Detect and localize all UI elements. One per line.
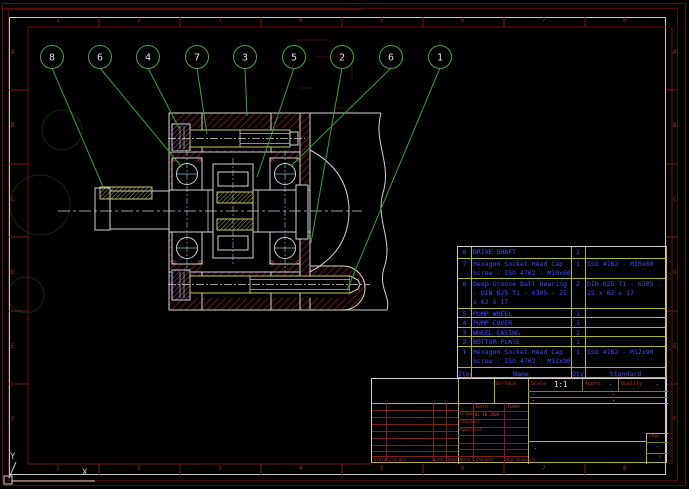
quality-value: - xyxy=(656,383,659,388)
drawn-label: Drawn xyxy=(460,413,474,418)
zone-left-c: C xyxy=(11,197,15,203)
scale-label: Scale xyxy=(531,382,546,387)
balloon-item-1[interactable]: 1 xyxy=(429,46,452,69)
surface-label: Surface xyxy=(495,382,516,387)
checked-label: Checked xyxy=(460,421,479,426)
page-small: P. xyxy=(659,456,664,460)
zone-bottom-3: 3 xyxy=(218,466,222,472)
zone-left-e: E xyxy=(11,344,15,350)
parts-list-row[interactable]: 2 BOTTOM PLATE 1 xyxy=(458,337,666,347)
parts-list-row[interactable]: 6 Deep Groove Ball Bearing - DIN 625 T1 … xyxy=(458,279,666,309)
zone-top-1: 1 xyxy=(56,18,60,24)
zone-bottom-8: 8 xyxy=(623,466,627,472)
balloon-item-4[interactable]: 4 xyxy=(137,46,160,69)
zone-bottom-2: 2 xyxy=(137,466,141,472)
signed-label: Approved xyxy=(460,429,482,434)
svg-text:4: 4 xyxy=(145,53,151,64)
zone-bottom-4: 4 xyxy=(299,466,303,472)
balloon-item-7[interactable]: 7 xyxy=(186,46,209,69)
balloon-item-6-left[interactable]: 6 xyxy=(89,46,112,69)
zone-left-a: A xyxy=(11,50,15,56)
parts-list-row[interactable]: 1 Hexagon Socket Head Cap Screw - ISO 47… xyxy=(458,347,666,368)
field-dash: - xyxy=(532,399,535,404)
zone-right-d: D xyxy=(673,270,677,276)
field-dash: - xyxy=(612,399,615,404)
zone-right-c: C xyxy=(673,197,677,203)
parts-list-row[interactable]: 8 DRIVE SHAFT 1 xyxy=(458,247,666,259)
rev-date-label: Date xyxy=(434,458,444,462)
drawn-date: 01.10.2006 xyxy=(475,413,499,417)
zone-bottom-1: 1 xyxy=(56,466,60,472)
rev-changes-label: Changes xyxy=(389,458,406,462)
title-value: - xyxy=(534,447,537,452)
balloon-item-8[interactable]: 8 xyxy=(41,46,64,69)
shaft-key[interactable] xyxy=(100,187,152,199)
balloon-item-3[interactable]: 3 xyxy=(234,46,257,69)
page-value: - xyxy=(656,445,659,450)
zone-top-2: 2 xyxy=(137,18,141,24)
approved-label: Appro. xyxy=(585,382,603,387)
zone-top-4: 4 xyxy=(299,18,303,24)
svg-text:1: 1 xyxy=(437,53,443,64)
zone-top-6: 6 xyxy=(461,18,465,24)
scale-value: 1:1 xyxy=(554,381,568,389)
date-header: Date xyxy=(476,405,488,410)
parts-list: 8 DRIVE SHAFT 1 7 Hexagon Socket Head Ca… xyxy=(457,246,667,378)
zone-top-5: 5 xyxy=(380,18,384,24)
parts-list-row[interactable]: 7 Hexagon Socket Head Cap Screw - ISO 47… xyxy=(458,259,666,279)
cad-viewport[interactable]: 8 6 4 7 3 5 2 6 1 Y X xyxy=(0,0,689,489)
parts-list-row[interactable]: 4 PUMP COVER 1 xyxy=(458,318,666,328)
norm-checked-label: Checked xyxy=(476,458,493,462)
zone-left-b: B xyxy=(11,123,15,129)
parts-list-row[interactable]: 5 PUMP WHEEL 1 xyxy=(458,309,666,318)
hub-key-bottom xyxy=(217,219,253,230)
svg-text:2: 2 xyxy=(339,53,345,64)
svg-text:6: 6 xyxy=(97,53,103,64)
balloon-item-6-right[interactable]: 6 xyxy=(380,46,403,69)
balloons: 8 6 4 7 3 5 2 6 1 xyxy=(41,46,452,69)
page-label: Page xyxy=(649,435,660,440)
name-header: Name xyxy=(508,405,520,410)
ucs-y-label: Y xyxy=(10,452,16,462)
ucs-x-label: X xyxy=(82,468,88,478)
zone-top-3: 3 xyxy=(218,18,222,24)
quality-label: Quality xyxy=(621,382,642,387)
zone-bottom-7: 7 xyxy=(542,466,546,472)
ucs-icon: Y X xyxy=(4,452,95,484)
zone-left-f: F xyxy=(11,417,15,423)
zone-right-a: A xyxy=(673,50,677,56)
balloon-item-5[interactable]: 5 xyxy=(283,46,306,69)
zone-bottom-5: 5 xyxy=(380,466,384,472)
svg-text:6: 6 xyxy=(388,53,394,64)
zone-top-7: 7 xyxy=(542,18,546,24)
zone-right-f: F xyxy=(673,417,677,423)
svg-text:7: 7 xyxy=(194,53,200,64)
svg-text:5: 5 xyxy=(291,53,297,64)
zone-top-8: 8 xyxy=(623,18,627,24)
svg-text:8: 8 xyxy=(49,53,55,64)
zone-bottom-6: 6 xyxy=(461,466,465,472)
title-block: Surface Scale 1:1 Appro. - Quality - - -… xyxy=(371,378,667,463)
zone-right-e: E xyxy=(673,344,677,350)
svg-text:3: 3 xyxy=(242,53,248,64)
rev-state-label: State xyxy=(374,458,386,462)
approved-value: - xyxy=(609,383,612,388)
norm-label: Norm. xyxy=(460,458,472,462)
zone-right-b: B xyxy=(673,123,677,129)
app-standard-label: App Standard xyxy=(506,458,535,462)
rev-name-label: Name xyxy=(448,458,458,462)
zone-left-d: D xyxy=(11,270,15,276)
parts-list-row[interactable]: 3 WHEEL CASING 1 xyxy=(458,328,666,337)
hub-key-top xyxy=(217,192,253,203)
pump-assembly-section[interactable] xyxy=(58,113,388,310)
